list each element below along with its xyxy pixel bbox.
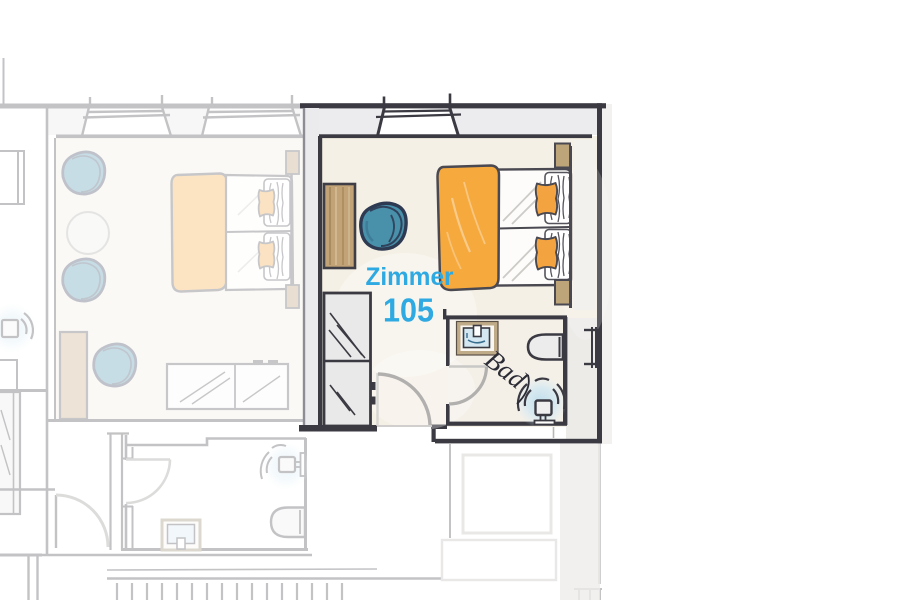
svg-text:105: 105 bbox=[383, 293, 434, 330]
svg-text:Zimmer: Zimmer bbox=[366, 263, 454, 291]
